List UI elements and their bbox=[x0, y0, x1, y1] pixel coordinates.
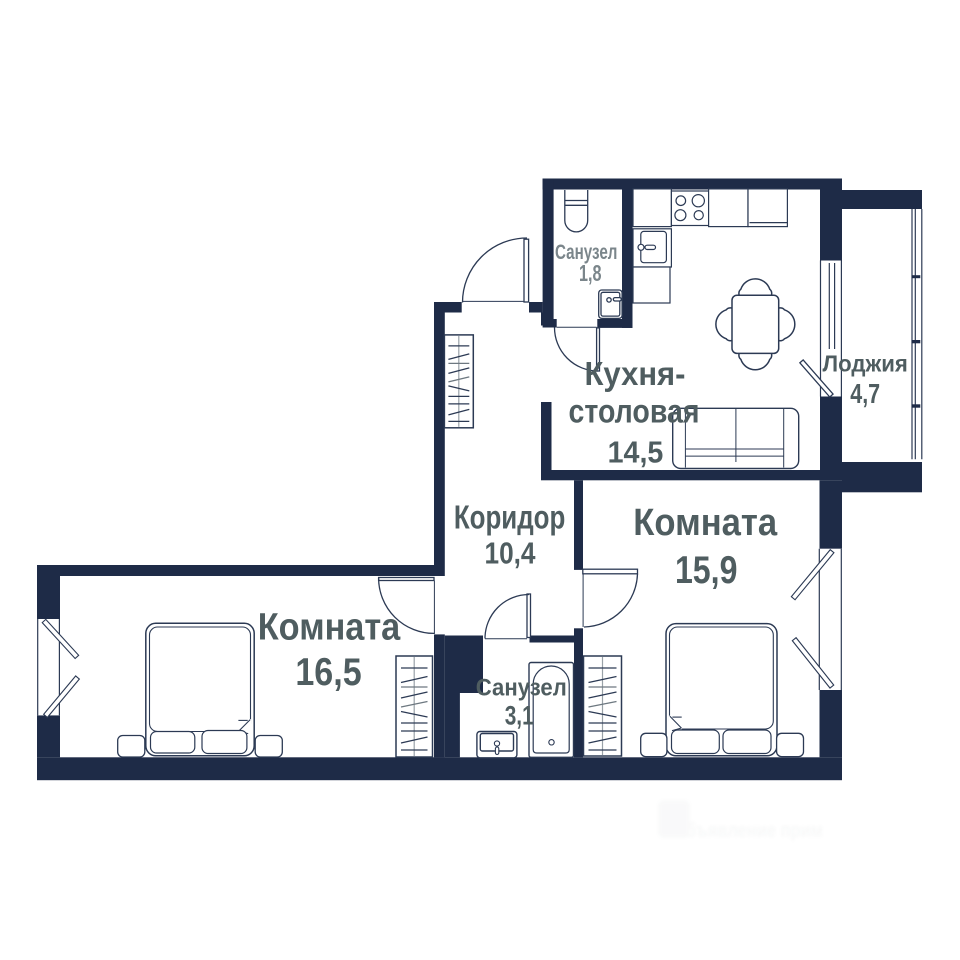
svg-text:Лоджия: Лоджия bbox=[823, 351, 908, 377]
svg-text:Комната: Комната bbox=[258, 607, 401, 649]
svg-text:Комната: Комната bbox=[633, 502, 778, 544]
svg-text:15,9: 15,9 bbox=[675, 549, 738, 592]
svg-text:Санузел: Санузел bbox=[476, 675, 567, 702]
svg-text:1,8: 1,8 bbox=[579, 260, 602, 286]
svg-text:столовая: столовая bbox=[569, 393, 700, 430]
svg-text:3,1: 3,1 bbox=[505, 701, 534, 731]
svg-text:14,5: 14,5 bbox=[608, 434, 664, 469]
svg-text:10,4: 10,4 bbox=[485, 536, 537, 571]
svg-text:Объявление прим: Объявление прим bbox=[673, 820, 823, 842]
svg-text:4,7: 4,7 bbox=[850, 378, 880, 409]
svg-text:Кухня-: Кухня- bbox=[585, 355, 686, 392]
svg-text:Коридор: Коридор bbox=[454, 499, 566, 536]
svg-text:16,5: 16,5 bbox=[295, 651, 361, 694]
